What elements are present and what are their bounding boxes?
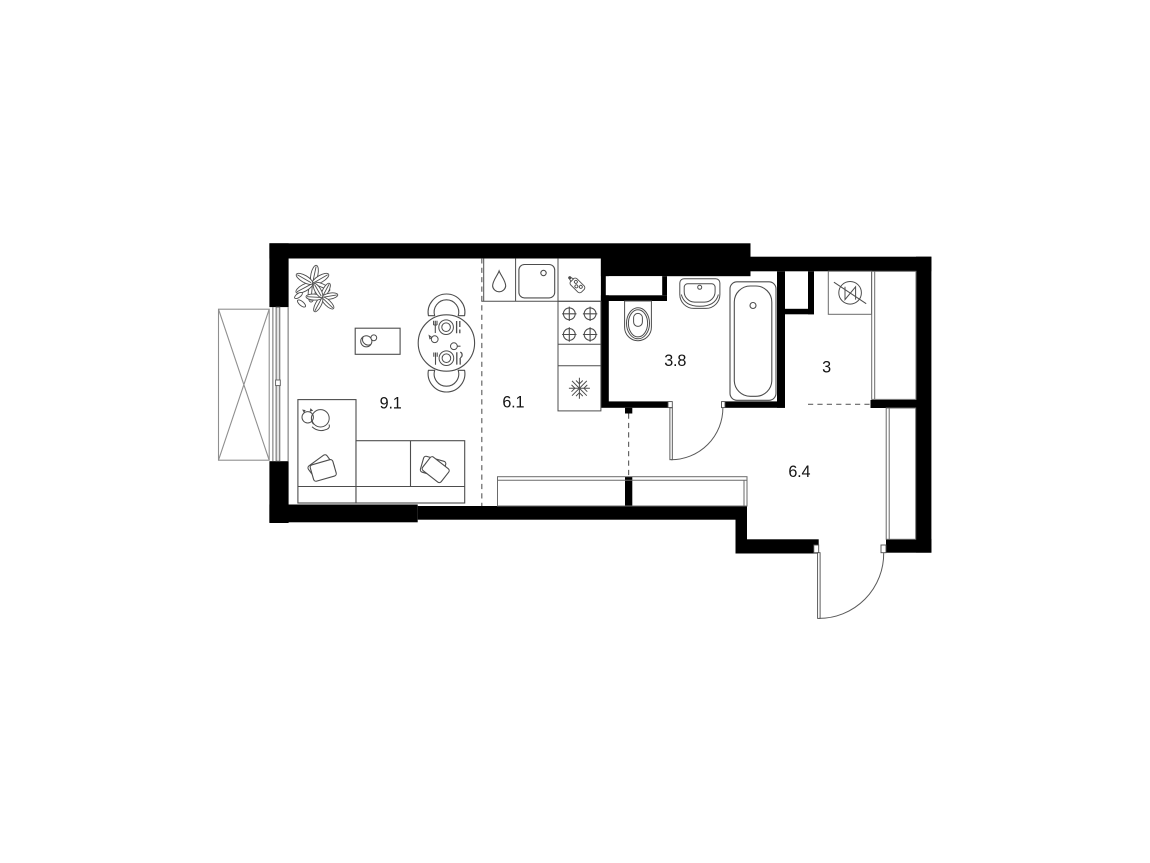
- svg-text:3.8: 3.8: [664, 352, 686, 370]
- svg-text:9.1: 9.1: [380, 394, 402, 412]
- svg-text:6.1: 6.1: [502, 394, 524, 412]
- svg-text:6.4: 6.4: [788, 463, 810, 481]
- svg-text:3: 3: [822, 359, 831, 377]
